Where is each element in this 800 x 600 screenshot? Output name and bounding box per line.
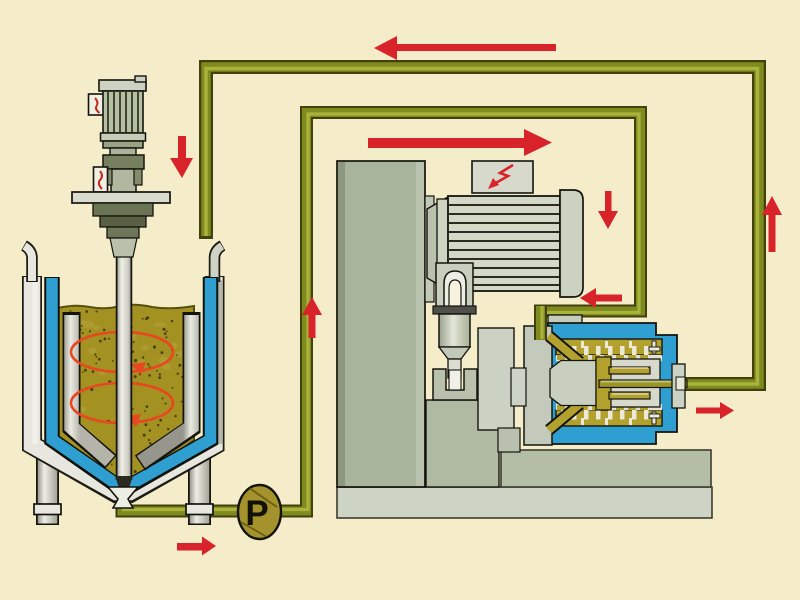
svg-text:P: P	[245, 494, 268, 533]
